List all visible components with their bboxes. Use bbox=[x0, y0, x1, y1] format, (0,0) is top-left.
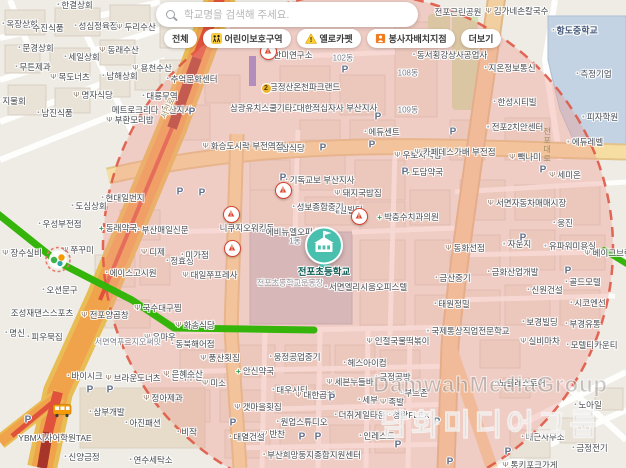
parking-marker: P bbox=[107, 385, 114, 396]
bldg-icon: ▪ bbox=[413, 52, 415, 58]
bldg-icon: ▪ bbox=[527, 287, 529, 293]
map-poi-label: +도담약국 bbox=[405, 166, 443, 178]
search-bar[interactable] bbox=[156, 2, 418, 27]
map-poi-label: ▪한결상회 bbox=[57, 0, 92, 11]
map-poi-label: Ψ대일쭈프레사 bbox=[182, 269, 237, 281]
map-poi-label: ▪아진패션 bbox=[125, 417, 160, 429]
map-poi-label: ▪신원건설 bbox=[527, 284, 562, 296]
poi-text: 골드모텔 bbox=[569, 276, 600, 288]
bldg-icon: ▪ bbox=[181, 252, 183, 258]
map-poi-label: 108동 bbox=[398, 68, 419, 79]
poi-text: 동래수산 bbox=[108, 44, 139, 56]
fork-icon: Ψ bbox=[106, 116, 112, 124]
poi-text: 전포2치안센터 bbox=[492, 121, 544, 133]
parking-marker: P bbox=[395, 440, 402, 451]
fork-icon: Ψ bbox=[326, 378, 332, 386]
map-poi-label: ▪동북해어점 bbox=[171, 338, 214, 350]
poi-text: 모텔티카운티 bbox=[571, 339, 618, 351]
poi-text: 인절국물떡볶이 bbox=[375, 335, 430, 347]
map-poi-label: ▪남해상회 bbox=[102, 70, 137, 82]
map-poi-label: Ψ빽나미 bbox=[509, 151, 541, 163]
bldg-icon: ▪ bbox=[566, 342, 568, 348]
bldg-icon: ▪ bbox=[388, 412, 390, 418]
map-poi-label: 102동 bbox=[333, 53, 354, 64]
map-poi-label: ●피자학원 bbox=[582, 111, 618, 123]
map-poi-label: Ψ명자식당 bbox=[73, 89, 113, 101]
map-poi-label: Ψ동화선점 bbox=[445, 242, 485, 254]
poi-text: 카페데스가배 부전점 bbox=[423, 146, 496, 158]
map-poi-label: 1동 bbox=[289, 236, 301, 247]
map-poi-label: ▪한성시티빌 bbox=[493, 96, 536, 108]
parking-marker: P bbox=[25, 415, 32, 426]
map-poi-label: ▪지물회 bbox=[0, 95, 26, 107]
poi-text: 목도너츠 bbox=[59, 71, 90, 83]
map-poi-label: ▪웅정공업중기 bbox=[269, 351, 320, 363]
fork-icon: Ψ bbox=[202, 142, 208, 150]
parking-marker: P bbox=[177, 187, 184, 198]
map-poi-label: ●국제통상직업전문학교 bbox=[426, 325, 509, 337]
bldg-icon: ▪ bbox=[484, 65, 486, 71]
parking-marker: P bbox=[505, 447, 512, 458]
map-poi-label: 메트로크리다 부산지사 bbox=[112, 104, 193, 116]
map-poi-label: Ψ목도너츠 bbox=[50, 71, 90, 83]
poi-text: 신원건설 bbox=[531, 284, 562, 296]
map-poi-label: ▪오션문구 bbox=[42, 284, 77, 296]
chip-all[interactable]: 전체 bbox=[164, 29, 197, 48]
chip-label: 봉사자배치지점 bbox=[389, 32, 447, 45]
parking-marker: P bbox=[450, 127, 457, 138]
parking-marker: P bbox=[540, 165, 547, 176]
poi-text: 부산매일신문 bbox=[142, 224, 189, 236]
map-poi-label: ▪우성부전점 bbox=[38, 218, 81, 230]
bldg-icon: ▪ bbox=[565, 321, 567, 327]
map-poi-label: ▪현대일번지 bbox=[101, 192, 144, 204]
map-poi-label: Ψ브라운도너츠 bbox=[105, 372, 160, 384]
map-poi-label: ▪금정산온천파크랜드 bbox=[266, 81, 341, 93]
fork-icon: Ψ bbox=[380, 398, 386, 406]
fork-icon: Ψ bbox=[520, 337, 526, 345]
poi-text: 더취게일타운 bbox=[339, 409, 386, 421]
map-poi-label: Ψ실비마차 bbox=[520, 335, 560, 347]
map-poi-label: ▪원업스튜디오 bbox=[276, 416, 327, 428]
bldg-icon: ▪ bbox=[487, 269, 489, 275]
fork-icon: Ψ bbox=[99, 46, 105, 54]
bldg-icon: ▪ bbox=[37, 110, 39, 116]
map-poi-label: ▪문경상회 bbox=[18, 42, 53, 54]
parking-marker: P bbox=[402, 167, 409, 178]
poi-text: 국제통상직업전문학교 bbox=[431, 325, 509, 337]
filter-chips: 전체어린이보호구역!옐로카펫봉사자배치지점더보기 bbox=[164, 29, 501, 48]
map-poi-label: ▪신양금정 bbox=[64, 451, 99, 463]
poi-text: 성보종합중기 bbox=[297, 201, 344, 213]
bldg-icon: ▪ bbox=[125, 420, 127, 426]
poi-text: 서면역푸르지오써밋 bbox=[95, 337, 161, 348]
bldg-icon: ▪ bbox=[262, 229, 264, 235]
search-input[interactable] bbox=[182, 8, 408, 22]
bldg-icon: ▪ bbox=[375, 374, 377, 380]
fork-icon: Ψ bbox=[200, 354, 206, 362]
poi-text: 안신약국 bbox=[243, 365, 274, 377]
poi-text: 지온정보통신 bbox=[489, 62, 536, 74]
poi-text: 헤스아이컴 bbox=[348, 357, 387, 369]
poi-text: 신양금정 bbox=[68, 451, 99, 463]
child-chip-icon bbox=[211, 33, 222, 44]
dot-icon: ● bbox=[503, 242, 506, 247]
chip-label: 전체 bbox=[172, 32, 189, 45]
bldg-icon: ▪ bbox=[166, 258, 168, 264]
map-poi-label: Ψ은혜수산 bbox=[163, 368, 203, 380]
map-poi-label: Ψ정아제과 bbox=[143, 392, 183, 404]
map-poi-label: ●전포2치안센터 bbox=[487, 121, 544, 133]
chip-yellow-carpet[interactable]: !옐로카펫 bbox=[297, 29, 361, 48]
map-poi-label: ▪도심상회 bbox=[71, 200, 106, 212]
poi-text: 비작 bbox=[181, 426, 197, 438]
map-poi-label: Ψ풍산횟집 bbox=[200, 352, 240, 364]
poi-text: 두리수산 bbox=[125, 21, 156, 33]
bldg-icon: ▪ bbox=[71, 203, 73, 209]
poi-text: 현대일번지 bbox=[106, 192, 145, 204]
map-poi-label: ▪웅진 bbox=[553, 217, 573, 229]
fork-icon: Ψ bbox=[134, 304, 140, 312]
fork-icon: Ψ bbox=[502, 461, 508, 468]
bldg-icon: ▪ bbox=[553, 220, 555, 226]
bldg-icon: ▪ bbox=[269, 354, 271, 360]
poi-text: 화송식당 bbox=[184, 319, 215, 331]
map-poi-label: Ψ돼지국밥집 bbox=[334, 187, 381, 199]
poi-text: 금화산업개발 bbox=[492, 266, 539, 278]
map-poi-label: ▪무튼제과 bbox=[15, 61, 50, 73]
bldg-icon: ▪ bbox=[42, 287, 44, 293]
fork-icon: Ψ bbox=[394, 151, 400, 159]
poi-text: 금정공방 bbox=[379, 371, 410, 383]
map-poi-label: 109동 bbox=[398, 105, 419, 116]
map-poi-label: Ψ서면자동차매매시장 bbox=[488, 197, 567, 209]
map-poi-label: ▪부산희망둥지종합지원센터 bbox=[263, 449, 361, 461]
map-poi-label: ▪금정전기 bbox=[572, 442, 607, 454]
bldg-icon: ▪ bbox=[74, 23, 76, 29]
map-poi-label: ▪인레스드 bbox=[359, 430, 394, 442]
poi-text: 대열건설 bbox=[233, 431, 264, 443]
poi-text: 노아일 bbox=[578, 399, 601, 411]
poi-text: 금정전기 bbox=[576, 442, 607, 454]
bldg-icon: ▪ bbox=[166, 76, 168, 82]
dot-icon: ● bbox=[487, 125, 490, 130]
poi-text: 청란FLEX bbox=[393, 409, 430, 421]
chip-volunteer-point[interactable]: 봉사자배치지점 bbox=[367, 29, 455, 48]
fork-icon: Ψ bbox=[366, 337, 372, 345]
poi-text: 대한적십자사 부산지사 bbox=[297, 102, 378, 114]
subway-exit-badge: 2 bbox=[261, 83, 272, 94]
parking-marker: P bbox=[87, 385, 94, 396]
poi-text: 기독교보 부산지사 bbox=[290, 174, 355, 186]
poi-text: 명자식당 bbox=[82, 89, 113, 101]
poi-text: 은혜수산 bbox=[172, 368, 203, 380]
map-poi-label: ▪지온정보통신 bbox=[484, 62, 535, 74]
poi-text: 삼부개발 bbox=[93, 406, 124, 418]
parking-marker: P bbox=[230, 418, 237, 429]
parking-marker: P bbox=[315, 432, 322, 443]
map-poi-label: Ψ장수실비 bbox=[2, 247, 42, 259]
map-poi-label: ▪더취게일타운 bbox=[334, 409, 385, 421]
map-poi-label: Ψ동래수산 bbox=[99, 44, 139, 56]
fork-icon: Ψ bbox=[509, 153, 515, 161]
bldg-icon: ▪ bbox=[359, 433, 361, 439]
map-poi-label: Ψ세미온 bbox=[549, 169, 581, 181]
poi-text: YBM시사어학원TAE bbox=[18, 432, 91, 444]
map-poi-label: ▪에듀센트 bbox=[364, 126, 399, 138]
warning-marker[interactable]: ▲! bbox=[275, 182, 292, 199]
poi-text: 에듀레벨 bbox=[572, 136, 603, 148]
map-poi-label: +박충수치과의원 bbox=[377, 211, 439, 223]
fork-icon: Ψ bbox=[202, 379, 208, 387]
bldg-icon: ▪ bbox=[2, 21, 4, 27]
poi-text: 조성재댄스스포츠 bbox=[11, 307, 74, 319]
fork-icon: Ψ bbox=[334, 189, 340, 197]
fork-icon: Ψ bbox=[175, 321, 181, 329]
poi-text: 노블레스토어 bbox=[499, 377, 546, 389]
bldg-icon: ▪ bbox=[276, 419, 278, 425]
poi-text: 대일쭈프레사 bbox=[191, 269, 238, 281]
poi-text: 보경빌딩 bbox=[526, 316, 557, 328]
carpet-chip-icon: ! bbox=[305, 33, 317, 44]
bldg-icon: ▪ bbox=[57, 2, 59, 8]
poi-text: 1동 bbox=[289, 236, 301, 247]
bldg-icon: ▪ bbox=[521, 434, 523, 440]
fork-icon: Ψ bbox=[584, 249, 590, 257]
poi-text: 미가점 bbox=[185, 249, 208, 261]
poi-text: 배근사무소 bbox=[526, 431, 565, 443]
bldg-icon: ▪ bbox=[38, 221, 40, 227]
chip-label: 옐로카펫 bbox=[320, 32, 353, 45]
fork-icon: Ψ bbox=[143, 394, 149, 402]
dot-icon: ● bbox=[544, 244, 547, 249]
poi-text: 금정산온천파크랜드 bbox=[270, 81, 340, 93]
poi-text: 우성부전점 bbox=[43, 218, 82, 230]
map-viewport[interactable]: ▪한결상회▪옥장상회▪수진식품▪성심정육점Ψ두리수산▪문경상회Ψ동래수산▪세일상… bbox=[0, 0, 626, 468]
poi-text: 남해상회 bbox=[106, 70, 137, 82]
map-poi-label: +안신약국 bbox=[236, 365, 274, 377]
fork-icon: Ψ bbox=[81, 311, 87, 319]
bldg-icon: ▪ bbox=[325, 284, 327, 290]
poi-text: 돼지국밥집 bbox=[343, 187, 382, 199]
bldg-icon: ▪ bbox=[292, 204, 294, 210]
chip-label: 더보기 bbox=[469, 32, 494, 45]
poi-text: 메트로크리다 부산지사 bbox=[112, 104, 193, 116]
poi-text: 전포대로 bbox=[542, 127, 553, 163]
map-poi-label: ▪피우묵집 bbox=[27, 331, 62, 343]
map-poi-label: Ψ세븐누들바 bbox=[326, 376, 373, 388]
fork-icon: Ψ bbox=[105, 374, 111, 382]
bus-icon bbox=[52, 404, 72, 423]
bldg-icon: ▪ bbox=[142, 93, 144, 99]
bldg-icon: ▪ bbox=[576, 71, 578, 77]
warning-exclamation: ! bbox=[230, 212, 232, 218]
poi-text: 김가네손칼국수 bbox=[494, 5, 549, 17]
poi-text: 동화선점 bbox=[454, 242, 485, 254]
map-poi-label: Ψ통키포크가게 bbox=[502, 459, 557, 468]
map-poi-label: ▪삼부개발 bbox=[89, 406, 124, 418]
poi-text: 수진식품 bbox=[32, 22, 63, 34]
map-poi-label: ▪비작 bbox=[177, 426, 197, 438]
map-poi-label: ▪대한적십자사 부산지사 bbox=[293, 102, 378, 114]
bldg-icon: ▪ bbox=[434, 301, 436, 307]
warning-marker[interactable]: ▲! bbox=[351, 208, 368, 225]
map-poi-label: ▪측정기업 bbox=[576, 68, 611, 80]
school-marker-label: 전포초등학교 bbox=[298, 264, 350, 278]
fork-icon: Ψ bbox=[549, 171, 555, 179]
fork-icon: Ψ bbox=[485, 7, 491, 15]
poi-text: 반찬 bbox=[269, 428, 285, 440]
poi-text: 쭈꾸미 bbox=[70, 244, 93, 256]
poi-text: 태원정밀 bbox=[438, 298, 469, 310]
poi-text: 도담약국 bbox=[412, 166, 443, 178]
bldg-icon: ▪ bbox=[18, 45, 20, 51]
bldg-icon: ▪ bbox=[64, 54, 66, 60]
poi-text: 세부 bbox=[362, 394, 378, 406]
parking-marker: P bbox=[520, 233, 527, 244]
map-poi-label: ▪바이시크 bbox=[67, 370, 102, 382]
bldg-icon: ▪ bbox=[293, 105, 295, 111]
bldg-icon: ▪ bbox=[15, 64, 17, 70]
poi-text: 동북해어점 bbox=[176, 338, 215, 350]
poi-text: 연수세탁소 bbox=[134, 454, 173, 466]
parking-marker: P bbox=[189, 107, 196, 118]
map-poi-label: ▪헤스아이컴 bbox=[343, 357, 386, 369]
map-poi-label: Ψ인절국물떡볶이 bbox=[366, 335, 429, 347]
map-poi-label: 조성재댄스스포츠 bbox=[11, 307, 74, 319]
svg-text:!: ! bbox=[309, 37, 311, 44]
bldg-icon: ▪ bbox=[171, 341, 173, 347]
poi-text: 세미온 bbox=[557, 169, 580, 181]
map-poi-label: 전포대로 bbox=[542, 127, 553, 163]
poi-text: 국수대구찜 bbox=[143, 302, 182, 314]
search-icon bbox=[166, 10, 175, 19]
fork-icon: Ψ bbox=[295, 391, 301, 399]
poi-text: 전포근린공원 bbox=[435, 6, 482, 18]
poi-text: 부브존 bbox=[404, 387, 427, 399]
parking-marker: P bbox=[447, 457, 454, 468]
map-poi-label: ▪모텔티카운티 bbox=[566, 339, 617, 351]
bldg-icon: ▪ bbox=[64, 454, 66, 460]
bldg-icon: ▪ bbox=[89, 409, 91, 415]
warning-exclamation: ! bbox=[267, 49, 269, 55]
poi-text: 아진패션 bbox=[129, 417, 160, 429]
poi-text: 피자학원 bbox=[587, 111, 618, 123]
map-poi-label: ▪동서횡강상사공업사 bbox=[413, 49, 488, 61]
poi-text: 108동 bbox=[398, 68, 419, 79]
fork-icon: Ψ bbox=[163, 370, 169, 378]
warning-exclamation: ! bbox=[358, 214, 360, 220]
chip-more[interactable]: 더보기 bbox=[461, 29, 502, 48]
route-start-marker[interactable] bbox=[43, 245, 73, 280]
map-poi-label: ▪남진식품 bbox=[37, 107, 72, 119]
map-poi-label: Ψ갯마을횟집 bbox=[234, 401, 281, 413]
poi-text: 정아제과 bbox=[152, 392, 183, 404]
poi-text: 명신 bbox=[9, 327, 25, 339]
poi-text: 무튼제과 bbox=[19, 61, 50, 73]
map-poi-label: YBM시사어학원TAE bbox=[18, 432, 91, 444]
poi-text: 시코엔선 bbox=[574, 297, 605, 309]
map-poi-label: Ψ미소 bbox=[202, 377, 226, 389]
volunteer-chip-icon bbox=[375, 33, 386, 44]
fork-icon: Ψ bbox=[182, 271, 188, 279]
poi-text: 장수실비 bbox=[11, 247, 42, 259]
cross-icon: + bbox=[377, 213, 382, 222]
poi-text: 웅진 bbox=[557, 217, 573, 229]
bldg-icon: ▪ bbox=[358, 397, 360, 403]
poi-text: 베이크브런치 bbox=[593, 247, 626, 259]
map-poi-label: ▪부경유통 bbox=[565, 318, 600, 330]
fork-icon: Ψ bbox=[445, 244, 451, 252]
map-poi-label: ▪보경빌딩 bbox=[522, 316, 557, 328]
parking-marker: P bbox=[375, 112, 382, 123]
poi-text: 성심정육점 bbox=[79, 20, 118, 32]
map-poi-label: 전포근린공원 bbox=[435, 6, 482, 18]
poi-text: 한성시티빌 bbox=[498, 96, 537, 108]
map-poi-label: ▪금산중기 bbox=[435, 272, 470, 284]
poi-text: 문경상회 bbox=[22, 42, 53, 54]
bldg-icon: ▪ bbox=[522, 319, 524, 325]
poi-text: 풍산횟집 bbox=[209, 352, 240, 364]
poi-text: 에이스고시원 bbox=[110, 267, 157, 279]
poi-text: 금산중기 bbox=[439, 272, 470, 284]
map-poi-label: ●자운지 bbox=[503, 238, 532, 250]
poi-text: 피우묵집 bbox=[31, 331, 62, 343]
bldg-icon: ▪ bbox=[229, 434, 231, 440]
chip-label: 어린이보호구역 bbox=[225, 32, 283, 45]
poi-text: 원업스튜디오 bbox=[281, 416, 328, 428]
bldg-icon: ▪ bbox=[552, 27, 554, 33]
fork-icon: Ψ bbox=[414, 148, 420, 156]
bldg-icon: ▪ bbox=[334, 412, 336, 418]
poi-text: 웅정공업중기 bbox=[274, 351, 321, 363]
fork-icon: Ψ bbox=[73, 91, 79, 99]
warning-marker[interactable]: ▲! bbox=[224, 240, 241, 257]
bldg-icon: ▪ bbox=[28, 25, 30, 31]
bldg-icon: ▪ bbox=[27, 334, 29, 340]
parking-marker: P bbox=[329, 393, 336, 404]
bldg-icon: ▪ bbox=[263, 452, 265, 458]
fork-icon: Ψ bbox=[116, 23, 122, 31]
parking-marker: P bbox=[565, 266, 572, 277]
parking-marker: P bbox=[342, 65, 349, 76]
parking-marker: P bbox=[320, 143, 327, 154]
map-poi-label: ▪부브존 bbox=[400, 387, 428, 399]
map-poi-label: 서면역푸르지오써밋 bbox=[95, 337, 161, 348]
bldg-icon: ▪ bbox=[105, 270, 107, 276]
map-poi-label: ▪명신 bbox=[5, 327, 25, 339]
bldg-icon: ▪ bbox=[5, 330, 7, 336]
warning-exclamation: ! bbox=[282, 188, 284, 194]
map-poi-label: Ψ화송식당 bbox=[175, 319, 215, 331]
bldg-icon: ▪ bbox=[400, 390, 402, 396]
poi-text: 측정기업 bbox=[580, 68, 611, 80]
map-poi-label: Ψ김가네손칼국수 bbox=[485, 5, 548, 17]
map-poi-label: ▪청란FLEX bbox=[388, 409, 429, 421]
bldg-icon: ▪ bbox=[343, 360, 345, 366]
warning-marker[interactable]: ▲! bbox=[223, 206, 240, 223]
poi-text: 박충수치과의원 bbox=[384, 211, 439, 223]
poi-text: 미소 bbox=[210, 377, 226, 389]
map-poi-label: ▪배근사무소 bbox=[521, 431, 564, 443]
chip-child-zone[interactable]: 어린이보호구역 bbox=[203, 29, 291, 48]
poi-text: 전포양곱창 bbox=[90, 309, 129, 321]
poi-text: 남진식품 bbox=[41, 107, 72, 119]
poi-text: 디제 bbox=[149, 246, 165, 258]
map-poi-label: Ψ베이크브런치 bbox=[584, 247, 626, 259]
poi-text: 인레스드 bbox=[363, 430, 394, 442]
map-poi-label: Ψ전포양곱창 bbox=[81, 309, 128, 321]
